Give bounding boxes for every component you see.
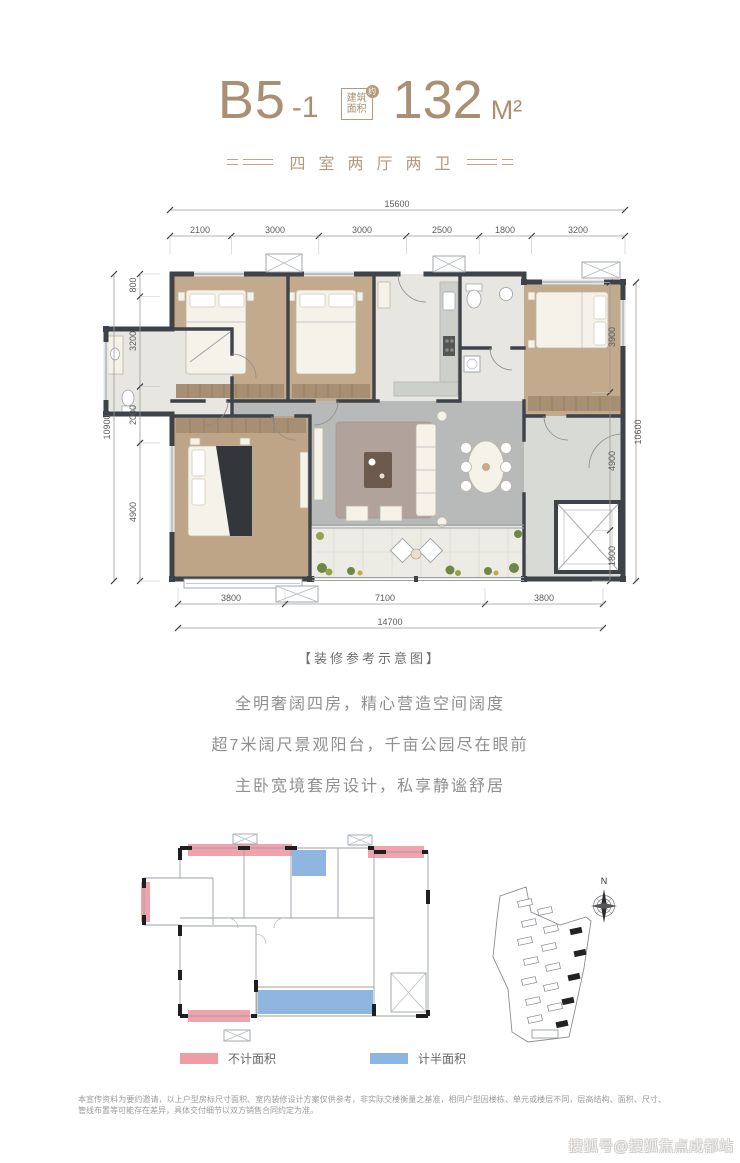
dim-right-seg0: 3900 [607, 327, 617, 347]
watermark: 搜狐号@搜狐焦点成都站 [569, 1136, 734, 1156]
dim-top-seg1: 3000 [265, 225, 285, 235]
dim-bottom-seg2: 3800 [534, 593, 554, 603]
unit-name-main: B5 [218, 78, 286, 124]
floorplan-svg: 15600 2100 3000 3000 2500 1800 3200 1090… [98, 196, 658, 641]
dim-top-seg5: 3200 [568, 225, 588, 235]
dim-right-seg2: 1800 [607, 546, 617, 566]
dim-left-seg0: 800 [128, 277, 138, 292]
dim-right-seg1: 4900 [607, 451, 617, 471]
dim-left-seg1: 3200 [128, 331, 138, 351]
dim-left-seg2: 2000 [128, 405, 138, 425]
dim-bottom-seg1: 7100 [375, 593, 395, 603]
dim-top-seg0: 2100 [190, 225, 210, 235]
legend: 不计面积 计半面积 [180, 1050, 466, 1067]
poster-page: B5 -1 建筑 面积 约 132 M² 四室两厅两卫 [0, 0, 740, 1163]
dim-left-total: 10900 [102, 414, 112, 439]
dim-top-total: 15600 [384, 199, 409, 209]
schematic-patches [141, 844, 424, 1022]
subtitle-row: 四室两厅两卫 [0, 150, 740, 174]
dim-right-total: 10600 [633, 419, 643, 444]
marketing-line-1: 全明奢阔四房，精心营造空间阔度 [0, 684, 740, 725]
dim-top-seg3: 2500 [432, 225, 452, 235]
area-badge: 建筑 面积 约 [341, 88, 373, 120]
legend-item-excluded: 不计面积 [180, 1050, 276, 1067]
subtitle-deco-right [467, 159, 513, 165]
subtitle-deco-left [227, 159, 273, 165]
header: B5 -1 建筑 面积 约 132 M² [0, 78, 740, 124]
plan-caption: 【装修参考示意图】 [0, 648, 740, 667]
legend-label-excluded: 不计面积 [228, 1050, 276, 1067]
dim-left-seg3: 4900 [128, 502, 138, 522]
area-value: 132 [393, 78, 483, 124]
area-schematic [140, 830, 440, 1050]
marketing-line-2: 超7米阔尺景观阳台，千亩公园尽在眼前 [0, 725, 740, 766]
legend-swatch-blue [370, 1053, 408, 1064]
main-floorplan: 15600 2100 3000 3000 2500 1800 3200 1090… [98, 196, 658, 646]
disclaimer-text: 本宣传资料为要约邀请，以上户型房标尺寸面积、室内装修设计方案仅供参考，非实际交楼… [78, 1094, 666, 1116]
site-buildings [518, 899, 587, 1038]
north-label: N [601, 876, 608, 886]
dim-top-seg2: 3000 [352, 225, 372, 235]
schematic-svg [140, 830, 440, 1045]
dim-bottom-total: 14700 [377, 617, 402, 627]
site-plan: N [472, 858, 642, 1063]
north-compass: N [591, 876, 617, 923]
dim-top-seg4: 1800 [495, 225, 515, 235]
legend-label-half: 计半面积 [418, 1050, 466, 1067]
unit-name-sub: -1 [292, 91, 319, 124]
marketing-copy: 全明奢阔四房，精心营造空间阔度 超7米阔尺景观阳台，千亩公园尽在眼前 主卧宽境套… [0, 684, 740, 807]
area-badge-line2: 面积 [347, 104, 367, 115]
area-badge-line1: 建筑 [347, 93, 367, 104]
legend-item-half: 计半面积 [370, 1050, 466, 1067]
dim-bottom-seg0: 3800 [221, 593, 241, 603]
area-unit: M² [491, 97, 522, 124]
subtitle-text: 四室两厅两卫 [289, 150, 463, 174]
site-plan-svg: N [472, 858, 642, 1058]
legend-swatch-pink [180, 1053, 218, 1064]
marketing-line-3: 主卧宽境套房设计，私享静谧舒居 [0, 766, 740, 807]
approx-circle: 约 [366, 85, 379, 98]
